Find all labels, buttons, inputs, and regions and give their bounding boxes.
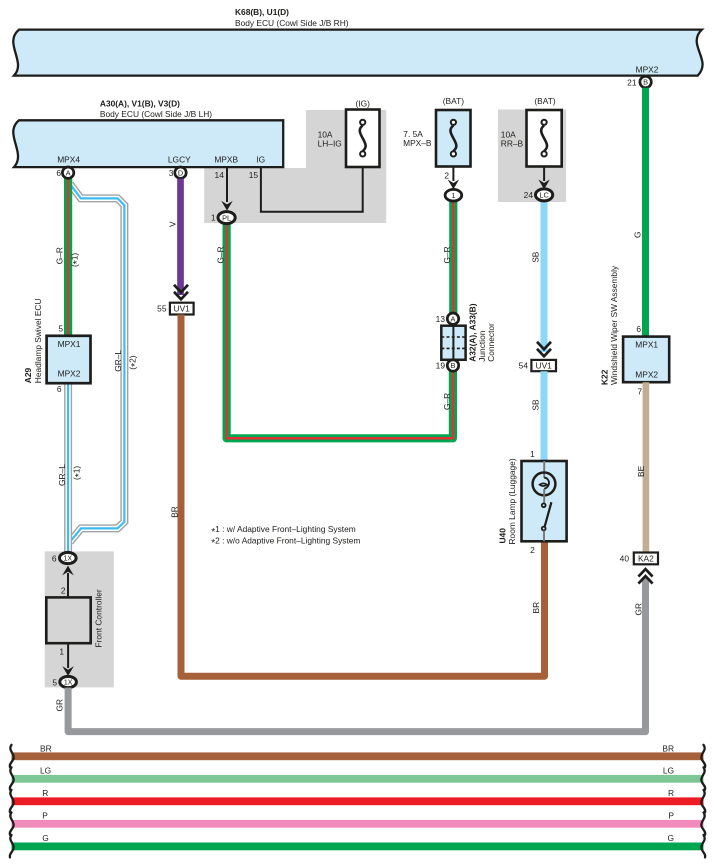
svg-text:BE: BE <box>636 465 646 477</box>
svg-text:Body ECU (Cowl Side J/B RH): Body ECU (Cowl Side J/B RH) <box>235 18 349 28</box>
svg-text:G–R: G–R <box>442 393 452 410</box>
svg-text:R: R <box>668 788 674 798</box>
svg-text:MPX4: MPX4 <box>57 154 80 164</box>
svg-text:A30(A), V1(B), V3(D): A30(A), V1(B), V3(D) <box>100 99 180 109</box>
svg-text:Headlamp Swivel ECU: Headlamp Swivel ECU <box>33 298 43 383</box>
svg-text:MPX1: MPX1 <box>635 340 658 350</box>
svg-text:BR: BR <box>170 506 180 518</box>
svg-text:Front Controller: Front Controller <box>94 589 104 647</box>
svg-text:B: B <box>451 361 456 370</box>
svg-text:MPX2: MPX2 <box>636 64 659 74</box>
svg-text:6: 6 <box>636 324 641 334</box>
svg-text:1: 1 <box>59 647 64 657</box>
svg-text:K68(B), U1(D): K68(B), U1(D) <box>235 7 289 17</box>
svg-text:1: 1 <box>451 191 455 200</box>
svg-text:15: 15 <box>249 170 259 180</box>
svg-text:BR: BR <box>40 743 52 753</box>
svg-text:24: 24 <box>524 190 534 200</box>
svg-text:G–R: G–R <box>215 246 225 263</box>
svg-text:G–R: G–R <box>442 246 452 263</box>
svg-text:SB: SB <box>531 251 541 263</box>
svg-text:Room Lamp (Luggage): Room Lamp (Luggage) <box>507 458 517 544</box>
svg-text:6: 6 <box>52 553 57 563</box>
svg-text:1X: 1X <box>64 556 73 563</box>
svg-text:GR–L: GR–L <box>113 350 123 372</box>
svg-text:Connector: Connector <box>486 323 496 362</box>
svg-text:UV1: UV1 <box>536 361 553 371</box>
svg-text:55: 55 <box>157 304 167 314</box>
svg-text:MPX1: MPX1 <box>58 339 81 349</box>
svg-text:54: 54 <box>519 361 529 371</box>
svg-text:6: 6 <box>57 384 62 394</box>
svg-text:(BAT): (BAT) <box>443 96 464 106</box>
svg-text:PL: PL <box>222 213 231 222</box>
svg-text:MPX–B: MPX–B <box>403 138 432 148</box>
svg-text:(BAT): (BAT) <box>534 96 555 106</box>
svg-text:1: 1 <box>530 449 535 459</box>
svg-text:P: P <box>668 811 674 821</box>
svg-text:Body ECU (Cowl Side J/B LH): Body ECU (Cowl Side J/B LH) <box>100 109 212 119</box>
svg-text:Windshield Wiper SW Assembly: Windshield Wiper SW Assembly <box>609 265 619 385</box>
svg-text:7: 7 <box>637 387 642 397</box>
svg-text:2: 2 <box>444 171 449 181</box>
svg-text:D: D <box>178 168 183 177</box>
svg-text:LH–IG: LH–IG <box>318 139 342 149</box>
svg-text:K22: K22 <box>600 369 610 385</box>
svg-text:MPX2: MPX2 <box>635 369 658 379</box>
svg-text:G: G <box>633 231 643 238</box>
svg-text:MPX2: MPX2 <box>58 368 81 378</box>
svg-text:A: A <box>451 314 456 323</box>
svg-text:2: 2 <box>530 545 535 555</box>
svg-text:13: 13 <box>436 314 446 324</box>
svg-text:2: 2 <box>61 585 66 595</box>
svg-text:UV1: UV1 <box>174 304 191 314</box>
svg-text:P: P <box>42 811 48 821</box>
svg-text:1: 1 <box>211 213 216 223</box>
svg-text:3: 3 <box>169 168 174 178</box>
svg-text:RR–B: RR–B <box>501 139 524 149</box>
svg-text:A: A <box>66 168 71 177</box>
svg-text:(IG): (IG) <box>355 98 370 108</box>
svg-text:6: 6 <box>56 168 61 178</box>
svg-text:B: B <box>643 78 648 87</box>
svg-text:21: 21 <box>627 77 637 87</box>
svg-text:A29: A29 <box>23 367 33 383</box>
svg-text:G: G <box>42 833 49 843</box>
svg-text:5: 5 <box>58 324 63 334</box>
svg-text:GR–L: GR–L <box>57 464 67 486</box>
svg-text:LC: LC <box>539 191 549 200</box>
svg-text:LG: LG <box>663 766 674 776</box>
svg-text:SB: SB <box>531 399 541 411</box>
svg-text:40: 40 <box>620 554 630 564</box>
svg-text:A32(A), A33(B): A32(A), A33(B) <box>468 303 478 362</box>
svg-text:IG: IG <box>256 154 265 164</box>
svg-text:GR: GR <box>634 603 644 616</box>
svg-text:LGCY: LGCY <box>168 154 191 164</box>
svg-text:R: R <box>42 788 48 798</box>
svg-text:LG: LG <box>40 766 51 776</box>
svg-text:14: 14 <box>215 170 225 180</box>
svg-text:G: G <box>667 833 674 843</box>
svg-text:5: 5 <box>52 677 57 687</box>
svg-text:G–R: G–R <box>55 247 65 264</box>
svg-text:KA2: KA2 <box>638 554 654 564</box>
svg-text:1X: 1X <box>64 680 73 687</box>
svg-text:V: V <box>168 221 178 227</box>
svg-text:GR: GR <box>54 699 64 712</box>
svg-text:BR: BR <box>531 602 541 614</box>
svg-text:MPXB: MPXB <box>214 154 238 164</box>
svg-text:19: 19 <box>436 361 446 371</box>
svg-text:BR: BR <box>662 743 674 753</box>
